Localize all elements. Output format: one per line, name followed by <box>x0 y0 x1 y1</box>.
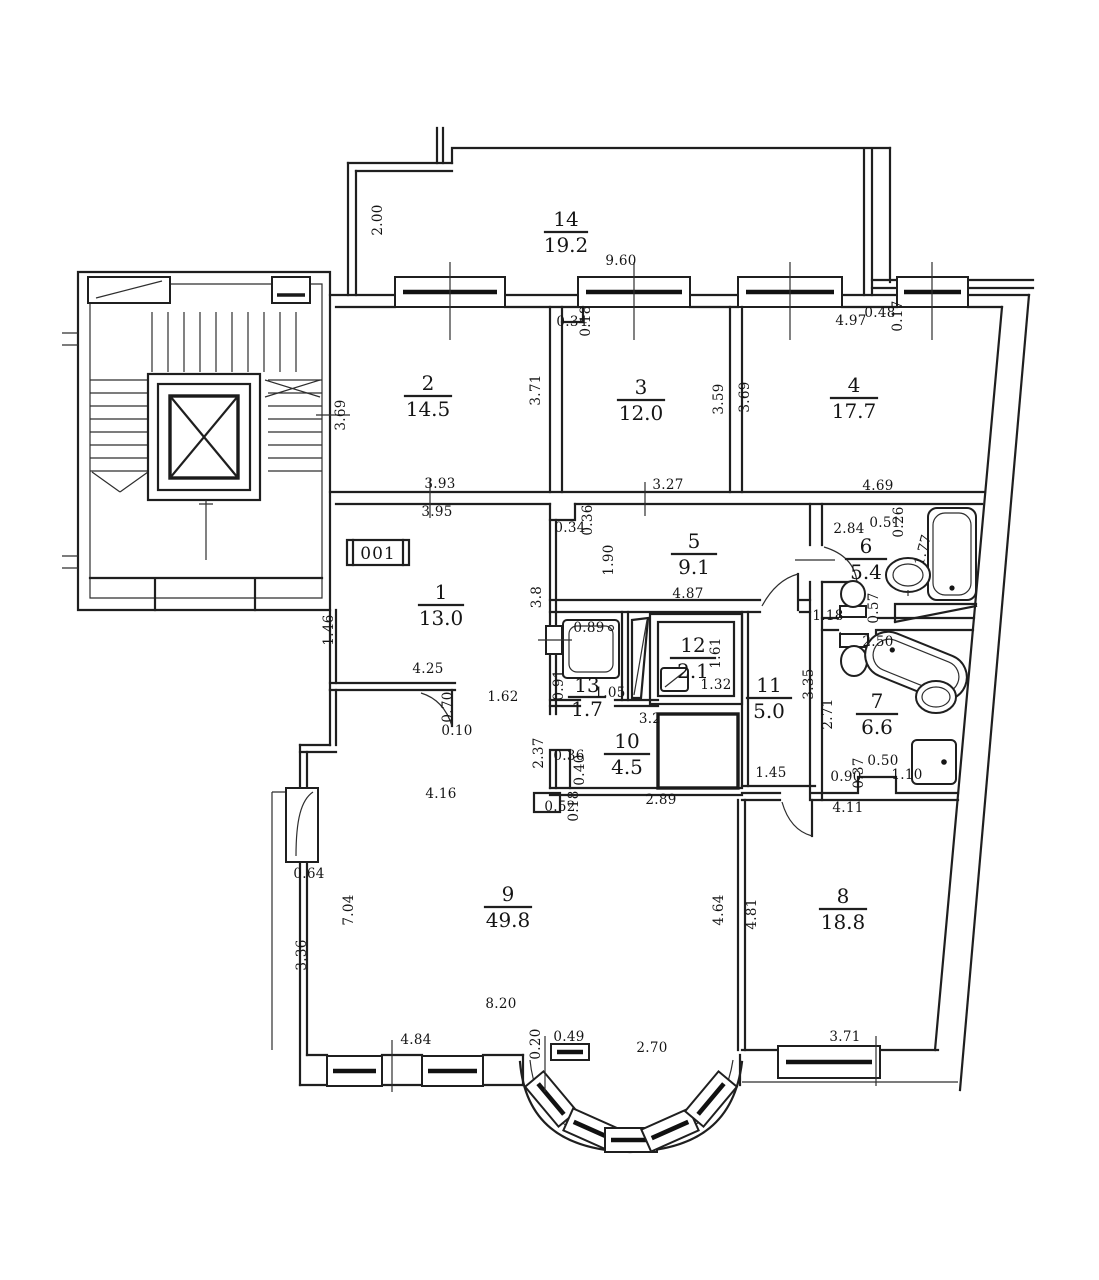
dim-r10-notch-h: 0.40 <box>572 754 588 785</box>
dim-r1-opening: 1.62 <box>487 689 518 705</box>
dim-bay-width: 2.70 <box>636 1040 667 1056</box>
svg-text:4: 4 <box>848 373 861 397</box>
dim-r3-bottom: 3.27 <box>652 477 683 493</box>
dim-r2-right: 3.71 <box>528 374 544 405</box>
dim-r11-bottom: 1.45 <box>755 765 786 781</box>
dim-r3-top-h: 0.18 <box>578 305 594 336</box>
sink-icon <box>916 681 956 713</box>
room-label-6: 6 5.4 <box>846 534 886 584</box>
dim-r7-b4: 1.10 <box>891 767 922 783</box>
svg-text:8: 8 <box>837 884 850 908</box>
svg-text:7: 7 <box>871 689 884 713</box>
svg-text:18.8: 18.8 <box>821 910 866 934</box>
dimension-ticks <box>316 262 932 1092</box>
dim-r1-door-h: 0.70 <box>440 691 456 722</box>
door-leaf <box>632 618 648 698</box>
dim-r3-right: 3.59 <box>711 383 727 414</box>
dim-r7-b2: 0.37 <box>851 757 867 788</box>
window-icon <box>422 1056 483 1086</box>
svg-text:19.2: 19.2 <box>544 233 589 257</box>
dim-r9-bay-w: 0.49 <box>553 1029 584 1045</box>
room-label-10: 10 4.5 <box>605 729 649 779</box>
floor-plan-page: 14 19.2 2 14.5 3 12.0 4 17.7 5 9.1 6 5.4 <box>0 0 1099 1280</box>
dim-r9-bay-h: 0.20 <box>528 1028 544 1059</box>
svg-text:49.8: 49.8 <box>486 908 531 932</box>
balcony-door-icon <box>286 788 318 862</box>
dim-r13-bottom: 1.05 <box>594 685 625 701</box>
dim-r2-bottom-outer: 3.93 <box>424 476 455 492</box>
dim-r10-corner-h: 0.18 <box>566 790 582 821</box>
room-label-2: 2 14.5 <box>405 371 451 421</box>
dim-r12-right: 1.61 <box>708 637 724 668</box>
dim-r4-top: 4.97 <box>835 313 866 329</box>
dim-r7-left: 2.71 <box>820 698 836 729</box>
dim-r9-top: 4.16 <box>425 786 456 802</box>
dim-r2-bottom-inner: 3.95 <box>421 504 452 520</box>
dim-r4-bottom: 4.69 <box>862 478 893 494</box>
dim-r5-bottom: 4.87 <box>672 586 703 602</box>
dim-r10-left: 2.37 <box>531 737 547 768</box>
svg-text:6: 6 <box>860 534 873 558</box>
dim-r13-left: 0.91 <box>551 669 567 700</box>
dim-r9-door: 0.64 <box>293 866 324 882</box>
dim-r9-left-upper: 7.04 <box>341 894 357 925</box>
svg-text:2: 2 <box>422 371 435 395</box>
dim-r8-top: 4.11 <box>832 800 863 816</box>
dim-r14-left: 2.00 <box>370 204 386 235</box>
dim-r6-top-h: 0.26 <box>891 506 907 537</box>
dim-r6-bottom: 1.18 <box>812 608 843 624</box>
top-wall <box>330 277 1033 307</box>
dim-r5-notch-h: 0.36 <box>580 504 596 535</box>
room-label-4: 4 17.7 <box>831 373 877 423</box>
bottom-wall <box>300 1044 958 1152</box>
stairs-upper-flight <box>152 312 296 372</box>
room-label-3: 3 12.0 <box>618 375 664 425</box>
bay-window <box>520 1060 742 1152</box>
stairwell <box>62 272 330 610</box>
stair-entry-icon <box>272 277 310 303</box>
room-label-14: 14 19.2 <box>544 207 589 257</box>
dim-r13-sink: 0.89 <box>573 620 604 636</box>
dim-r9-bottom: 4.84 <box>400 1032 431 1048</box>
svg-text:5.4: 5.4 <box>850 560 882 584</box>
door-swing <box>782 802 812 836</box>
window-icon <box>778 1046 880 1078</box>
hallway-walls <box>330 540 455 726</box>
stairs-left-flight <box>90 380 148 492</box>
toilet-icon <box>840 581 866 617</box>
room-label-9: 9 49.8 <box>485 882 531 932</box>
dim-r14-bottom: 9.60 <box>605 253 636 269</box>
svg-text:17.7: 17.7 <box>832 399 877 423</box>
floor-plan-drawing: 14 19.2 2 14.5 3 12.0 4 17.7 5 9.1 6 5.4 <box>0 0 1099 1280</box>
dim-r9-inner: 8.20 <box>485 996 516 1012</box>
stamp-001-text: 001 <box>360 544 395 564</box>
window-icon <box>551 1044 589 1060</box>
bathtub-icon <box>928 508 976 600</box>
room-label-5: 5 9.1 <box>672 529 716 579</box>
stair-direction-line <box>199 500 213 560</box>
svg-text:4.5: 4.5 <box>611 755 643 779</box>
dim-r7-top: 2.50 <box>862 634 893 650</box>
room-label-8: 8 18.8 <box>820 884 866 934</box>
svg-text:5.0: 5.0 <box>753 699 785 723</box>
svg-text:13.0: 13.0 <box>419 606 464 630</box>
dim-r1-door-w: 0.10 <box>441 723 472 739</box>
svg-text:14.5: 14.5 <box>406 397 451 421</box>
door-swing <box>762 574 798 606</box>
room-9-walls <box>272 745 336 1085</box>
svg-text:9: 9 <box>502 882 515 906</box>
dim-r5-left: 1.90 <box>601 544 617 575</box>
dim-r8-left-outer: 4.64 <box>711 894 727 925</box>
dim-r9-left-lower: 3.36 <box>294 939 310 970</box>
dim-r8-left-inner: 4.81 <box>744 898 760 929</box>
dim-r10-top: 3.2 <box>639 711 661 727</box>
elevator-shaft-icon <box>148 374 260 500</box>
svg-text:6.6: 6.6 <box>861 715 893 739</box>
room-label-7: 7 6.6 <box>857 689 897 739</box>
dim-r2-left: 3.69 <box>333 399 349 430</box>
dim-r1-bottom: 4.25 <box>412 661 443 677</box>
dim-r1-left: 1.46 <box>321 614 337 645</box>
dim-r6-ledge: 0.57 <box>866 592 882 623</box>
svg-text:3: 3 <box>635 375 648 399</box>
ventilation-shaft <box>658 714 738 788</box>
room-label-1: 1 13.0 <box>419 580 464 630</box>
room-label-11: 11 5.0 <box>747 673 791 723</box>
svg-text:11: 11 <box>756 673 781 697</box>
dim-r10-bottom: 2.89 <box>645 792 676 808</box>
stairs-right-flight <box>265 380 322 471</box>
svg-text:1: 1 <box>435 580 448 604</box>
dim-r8-bottom: 3.71 <box>829 1029 860 1045</box>
svg-text:12.0: 12.0 <box>619 401 664 425</box>
svg-text:14: 14 <box>553 207 578 231</box>
svg-text:9.1: 9.1 <box>678 555 710 579</box>
dim-r4-top-h: 0.17 <box>890 300 906 331</box>
dim-r4-left: 3.69 <box>737 381 753 412</box>
window-icon <box>327 1056 382 1086</box>
dim-r5-wall: 3.8 <box>529 586 545 608</box>
svg-text:5: 5 <box>688 529 701 553</box>
room-14-walls <box>348 128 890 295</box>
dim-r6-top: 2.84 <box>833 521 864 537</box>
dim-r11-right: 3.35 <box>801 668 817 699</box>
stair-window-icon <box>88 277 170 303</box>
ledge <box>895 604 976 622</box>
svg-text:12: 12 <box>680 633 705 657</box>
svg-text:10: 10 <box>614 729 639 753</box>
dim-r12-bottom: 1.32 <box>700 677 731 693</box>
